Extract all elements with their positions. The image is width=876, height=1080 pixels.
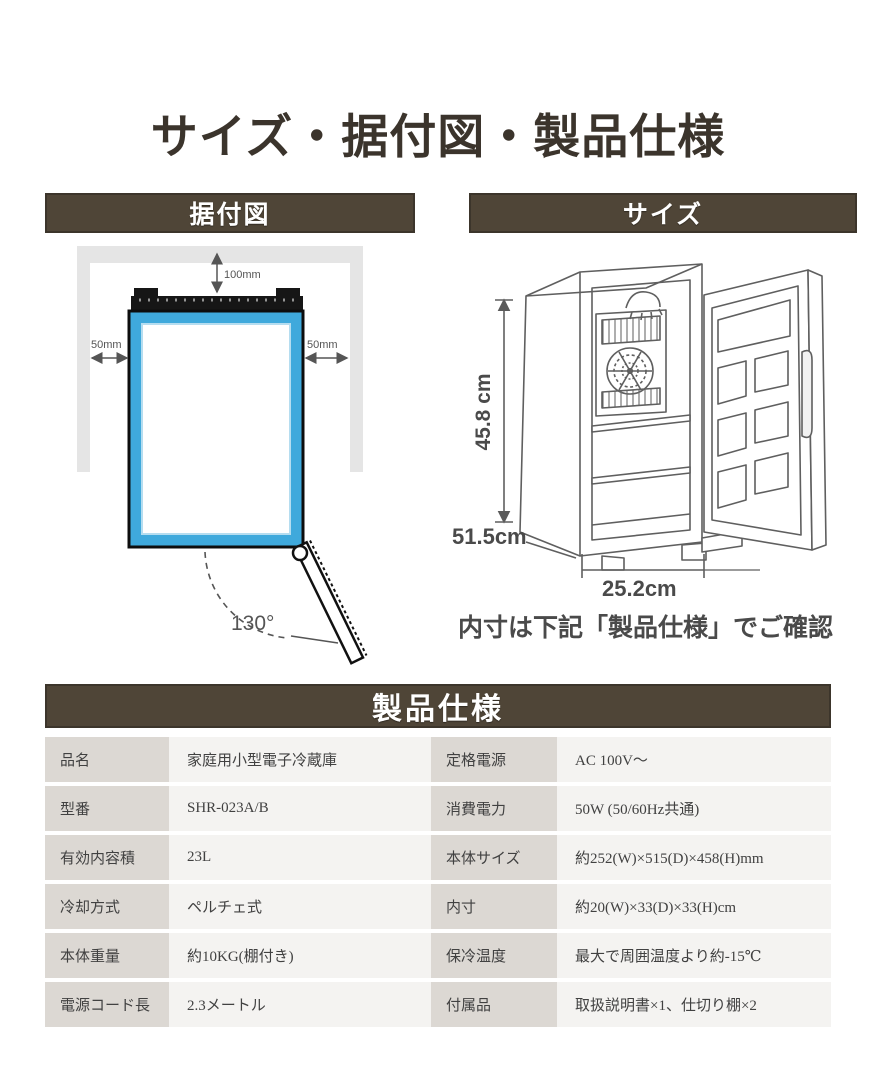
size-caption: 内寸は下記「製品仕様」でご確認 xyxy=(458,608,868,644)
clearance-right-label: 50mm xyxy=(307,339,338,351)
spec-value: 取扱説明書×1、仕切り棚×2 xyxy=(557,982,831,1027)
spec-label: 保冷温度 xyxy=(431,933,557,978)
open-door-panel xyxy=(704,270,826,550)
spec-label: 本体サイズ xyxy=(431,835,557,880)
spec-label: 有効内容積 xyxy=(45,835,169,880)
spec-label: 冷却方式 xyxy=(45,884,169,929)
fridge-top-view xyxy=(129,288,303,547)
spec-label: 電源コード長 xyxy=(45,982,169,1027)
clearance-top-label: 100mm xyxy=(224,269,261,281)
product-spec-page: サイズ・据付図・製品仕様 据付図 サイズ xyxy=(0,0,876,1080)
spec-label: 品名 xyxy=(45,737,169,782)
door-angle-label: 130° xyxy=(231,612,274,635)
spec-value: 家庭用小型電子冷蔵庫 xyxy=(169,737,431,782)
spec-label: 型番 xyxy=(45,786,169,831)
spec-label: 消費電力 xyxy=(431,786,557,831)
spec-value: 2.3メートル xyxy=(169,982,431,1027)
spec-table: 品名 家庭用小型電子冷蔵庫 定格電源 AC 100V～ 型番 SHR-023A/… xyxy=(45,737,831,1027)
size-diagram: 45.8 cm 51.5cm 25.2cm xyxy=(450,240,860,610)
door-handle-icon xyxy=(802,351,812,438)
size-section-header: サイズ xyxy=(469,193,857,233)
height-dimension-label: 45.8 cm xyxy=(472,373,495,450)
spec-value: 23L xyxy=(169,835,431,880)
spec-value: 約20(W)×33(D)×33(H)cm xyxy=(557,884,831,929)
spec-value: 50W (50/60Hz共通) xyxy=(557,786,831,831)
open-door xyxy=(293,541,367,664)
spec-value: SHR-023A/B xyxy=(169,786,431,831)
spec-label: 定格電源 xyxy=(431,737,557,782)
installation-diagram: 130° 100mm 50mm 50mm xyxy=(45,240,445,675)
spec-value: 最大で周囲温度より約-15℃ xyxy=(557,933,831,978)
fridge-cabinet xyxy=(520,264,702,556)
spec-label: 内寸 xyxy=(431,884,557,929)
installation-section-header: 据付図 xyxy=(45,193,415,233)
spec-value: AC 100V～ xyxy=(557,737,831,782)
shelves xyxy=(592,415,690,484)
page-title: サイズ・据付図・製品仕様 xyxy=(0,98,876,167)
spec-section-header: 製品仕様 xyxy=(45,684,831,728)
spec-value: 約252(W)×515(D)×458(H)mm xyxy=(557,835,831,880)
depth-dimension-label: 51.5cm xyxy=(452,524,527,549)
spec-value: ペルチェ式 xyxy=(169,884,431,929)
width-dimension-label: 25.2cm xyxy=(602,576,677,601)
spec-value: 約10KG(棚付き) xyxy=(169,933,431,978)
clearance-left-label: 50mm xyxy=(91,339,122,351)
spec-label: 付属品 xyxy=(431,982,557,1027)
cooling-unit xyxy=(596,310,666,416)
spec-label: 本体重量 xyxy=(45,933,169,978)
